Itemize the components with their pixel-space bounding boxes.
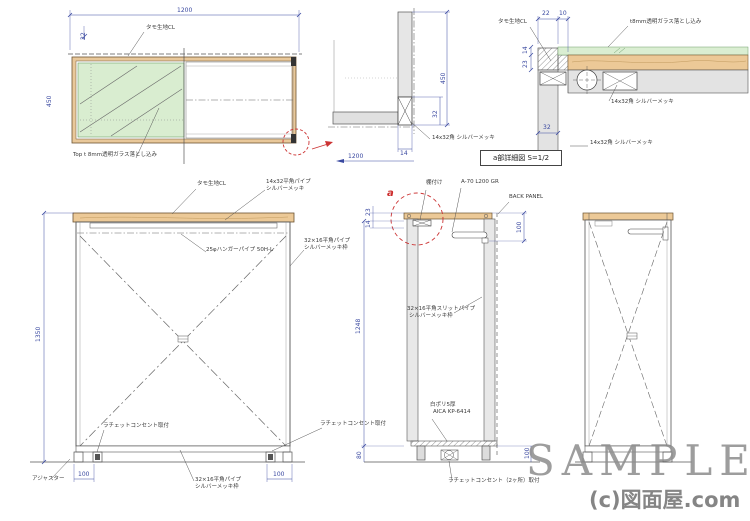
side-view — [575, 213, 692, 462]
plan-view — [68, 10, 333, 164]
elevation-frame-label-1: 32×16平角パイプ — [304, 238, 350, 244]
detail-pipe-bottom-label: 14x32角 シルバーメッキ — [590, 140, 653, 146]
elevation-outlet-left-label: ラチェットコンセント取付 — [103, 423, 169, 429]
plan-finish-label: タモ生地CL — [146, 25, 175, 31]
cad-drawing-sheet: 1200 450 22 450 32 14 1200 22 10 14 23 3… — [0, 0, 750, 521]
detail-dim-e: 32 — [543, 124, 551, 131]
section-dim-width: 1200 — [348, 153, 363, 160]
plan-dim-edge: 22 — [80, 32, 87, 40]
elevation-base-label-2: シルバーメッキ枠 — [195, 484, 239, 490]
side-section-dim-top2: 14 — [365, 220, 372, 228]
front-elevation — [30, 189, 322, 482]
detail-title-box: a部詳細図 S=1/2 — [480, 150, 562, 166]
elevation-finish-label: タモ生地CL — [197, 181, 226, 187]
elevation-frame-label-2: シルバーメッキ枠 — [304, 245, 348, 251]
side-section-slit-label-2: シルバーメッキ枠 — [409, 313, 453, 319]
side-section-dim-height: 1248 — [355, 319, 362, 334]
section-pipe-label: 14x32角 シルバーメッキ — [432, 135, 495, 141]
elevation-adjuster-label: アジャスター — [32, 476, 65, 482]
detail-glass-label: t8mm透明ガラス落とし込み — [630, 19, 701, 25]
elevation-hanger-label: 25φハンガーパイプ 50H-L — [206, 247, 273, 253]
elevation-outlet-right-label: ラチェットコンセント取付 — [320, 421, 386, 427]
watermark-credit: (c)図面屋.com — [589, 484, 740, 514]
plan-glass-label: Top t 8mm透明ガラス落とし込み — [73, 152, 157, 158]
plan-dim-height: 450 — [46, 96, 53, 107]
elevation-top-pipe-label-2: シルバーメッキ — [266, 186, 304, 192]
side-section-dim-bracket: 100 — [516, 222, 523, 233]
plan-dim-width: 1200 — [177, 7, 192, 14]
elevation-dim-foot-left: 100 — [78, 471, 89, 478]
detail-dim-a: 22 — [542, 10, 550, 17]
side-section-hanger-code-label: A-70 L200 GR — [461, 179, 499, 185]
side-section-back-panel-label: BACK PANEL — [509, 194, 543, 200]
elevation-dim-height: 1350 — [35, 327, 42, 342]
detail-finish-label: タモ生地CL — [498, 19, 527, 25]
detail-view — [529, 16, 748, 160]
side-section-slit-label-1: 32×16平角スリットパイプ — [407, 306, 475, 312]
sample-watermark: SAMPLE — [526, 436, 750, 485]
detail-marker-a: a — [387, 188, 394, 199]
detail-pipe-mid-label: 14x32角 シルバーメッキ — [611, 99, 674, 105]
detail-dim-c: 14 — [522, 46, 529, 54]
detail-dim-d: 23 — [522, 60, 529, 68]
elevation-base-label-1: 32×16平角パイプ — [195, 477, 241, 483]
side-section-view — [361, 188, 540, 480]
side-section-poly-label-2: AICA KP-6414 — [433, 409, 471, 415]
detail-dim-b: 10 — [559, 10, 567, 17]
side-section-dim-top1: 23 — [365, 208, 372, 216]
section-dim-pipe: 32 — [432, 110, 439, 118]
section-dim-height: 450 — [440, 73, 447, 84]
side-section-bracket-label: 棚付け — [426, 180, 443, 186]
elevation-dim-foot-right: 100 — [273, 471, 284, 478]
elevation-top-pipe-label-1: 14x32平角パイプ — [266, 179, 311, 185]
side-section-poly-label-1: 白ポリ5厚 — [430, 402, 456, 408]
side-section-dim-base: 80 — [356, 451, 363, 459]
section-dim-thickness: 14 — [400, 150, 408, 157]
